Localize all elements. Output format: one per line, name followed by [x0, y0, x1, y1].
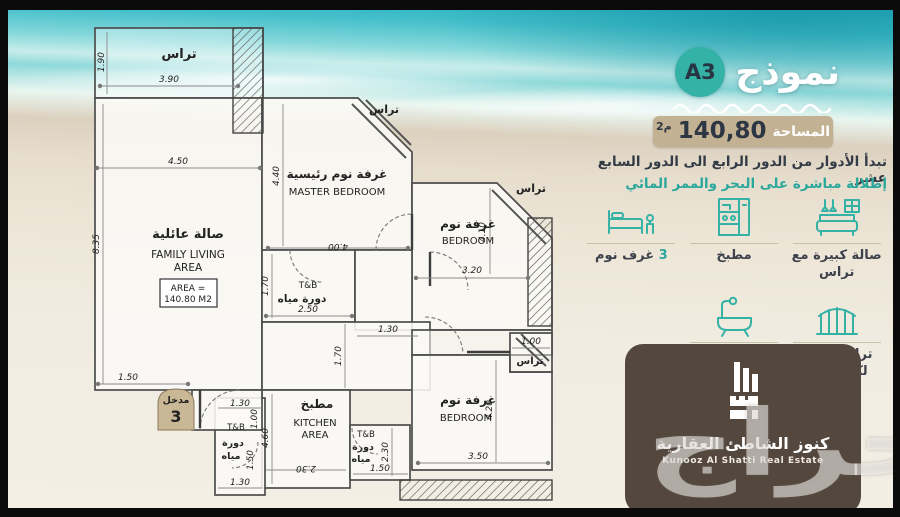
bathtub-icon — [710, 292, 758, 338]
dim-label: 1.00 — [521, 337, 541, 347]
kitchen-label-en2: AREA — [302, 430, 329, 441]
dim-label: 2.30 — [296, 463, 316, 473]
tb3-label-ar1: دورة — [222, 438, 244, 449]
sofa-icon — [811, 193, 863, 239]
bedroom2-label-ar: غرفة نوم — [440, 393, 496, 408]
dim-label: 1.00 — [250, 409, 260, 429]
hall-upper — [355, 250, 412, 330]
fence-icon — [813, 292, 861, 338]
description-line2: إطلالة مباشرة على البحر والممر المائي — [575, 176, 887, 192]
dim-label: 2.30 — [381, 442, 391, 462]
dim-label: 8.35 — [92, 234, 102, 254]
entrance-label: مدخل — [163, 395, 190, 406]
master-label-en: MASTER BEDROOM — [289, 187, 386, 198]
tb1-label-ar: دورة مياه — [278, 293, 327, 305]
dim-label: 4.60 — [261, 428, 271, 448]
wave-divider-icon — [672, 99, 832, 113]
room-family-living — [95, 98, 262, 390]
dim-label: 4.40 — [272, 166, 282, 186]
bedroom2-label-en: BEDROOM — [440, 413, 492, 424]
area-box-line1: AREA = — [171, 284, 206, 294]
dim-label: 3.90 — [159, 75, 179, 85]
area-label: المساحة — [772, 124, 830, 140]
hall-lower — [262, 322, 430, 390]
tb3-label: T&B — [226, 423, 245, 433]
dim-label: 4.00 — [328, 241, 348, 251]
model-title: نموذج A3 — [595, 47, 840, 97]
terrace-label: تراس — [161, 47, 196, 62]
tb2-label-ar1: دورة — [352, 442, 374, 453]
feature-divider — [690, 342, 778, 343]
bedroom1-label-en: BEDROOM — [442, 236, 494, 247]
dim-label: 1.70 — [261, 276, 271, 296]
dim-label: 3.20 — [462, 266, 482, 276]
feature-bedrooms: 3 غرف نوم — [583, 193, 680, 282]
bedroom1-label-ar: غرفة نوم — [440, 217, 496, 232]
watermark-text: حراج — [646, 398, 900, 490]
terrace-label-bed1: تراس — [516, 182, 546, 195]
dim-label: 1.30 — [378, 325, 398, 335]
area-value: 140,80 — [678, 120, 767, 143]
tb1-label: T&B — [298, 281, 318, 291]
model-word: نموذج — [735, 52, 840, 93]
area-box-line2: 140.80 M2 — [164, 295, 212, 305]
feature-living: صالة كبيرة مع تراس — [788, 193, 885, 282]
area-unit: م2 — [656, 120, 672, 133]
dim-label: 1.90 — [97, 52, 107, 72]
master-label-ar: غرفة نوم رئيسية — [287, 167, 388, 182]
tb3-label-ar2: مياه — [222, 451, 241, 462]
dim-label: 1.30 — [230, 399, 250, 409]
family-label-en: FAMILY LIVING — [151, 249, 225, 261]
family-label-ar: صالة عائلية — [152, 227, 224, 242]
area-badge: المساحة 140,80 م2 — [653, 116, 833, 147]
dim-label: 2.50 — [298, 305, 318, 315]
tb2-label-ar2: مياه — [352, 454, 371, 465]
feature-divider — [793, 243, 881, 244]
tb2-label: T&B — [356, 430, 375, 440]
dim-label: 1.70 — [334, 346, 344, 366]
model-code-badge: A3 — [675, 47, 725, 97]
floor-plan: 1.90 3.90 4.50 8.35 4.40 4.00 3.20 4.10 … — [0, 0, 580, 517]
dim-label: 3.50 — [468, 452, 488, 462]
dim-label: 4.50 — [168, 157, 188, 167]
model-code: A3 — [685, 60, 716, 84]
flyer: 1.90 3.90 4.50 8.35 4.40 4.00 3.20 4.10 … — [0, 0, 900, 517]
feature-divider — [587, 243, 675, 244]
dim-label: 1.50 — [246, 450, 256, 470]
terrace-label-master: تراس — [369, 103, 399, 116]
dim-label: 1.50 — [118, 373, 138, 383]
feature-divider — [690, 243, 778, 244]
feature-divider — [793, 342, 881, 343]
kitchen-label-ar: مطبخ — [301, 397, 334, 411]
feature-kitchen: مطبخ — [686, 193, 783, 282]
family-label-en2: AREA — [174, 262, 203, 274]
terrace-label-bed2: تراس — [516, 356, 543, 367]
dim-label: 1.50 — [370, 464, 390, 474]
bed-icon — [606, 193, 656, 239]
entrance-number: 3 — [170, 407, 181, 426]
kitchen-icon — [712, 193, 756, 239]
dim-label: 1.30 — [230, 478, 250, 488]
kitchen-label-en: KITCHEN — [293, 418, 336, 429]
